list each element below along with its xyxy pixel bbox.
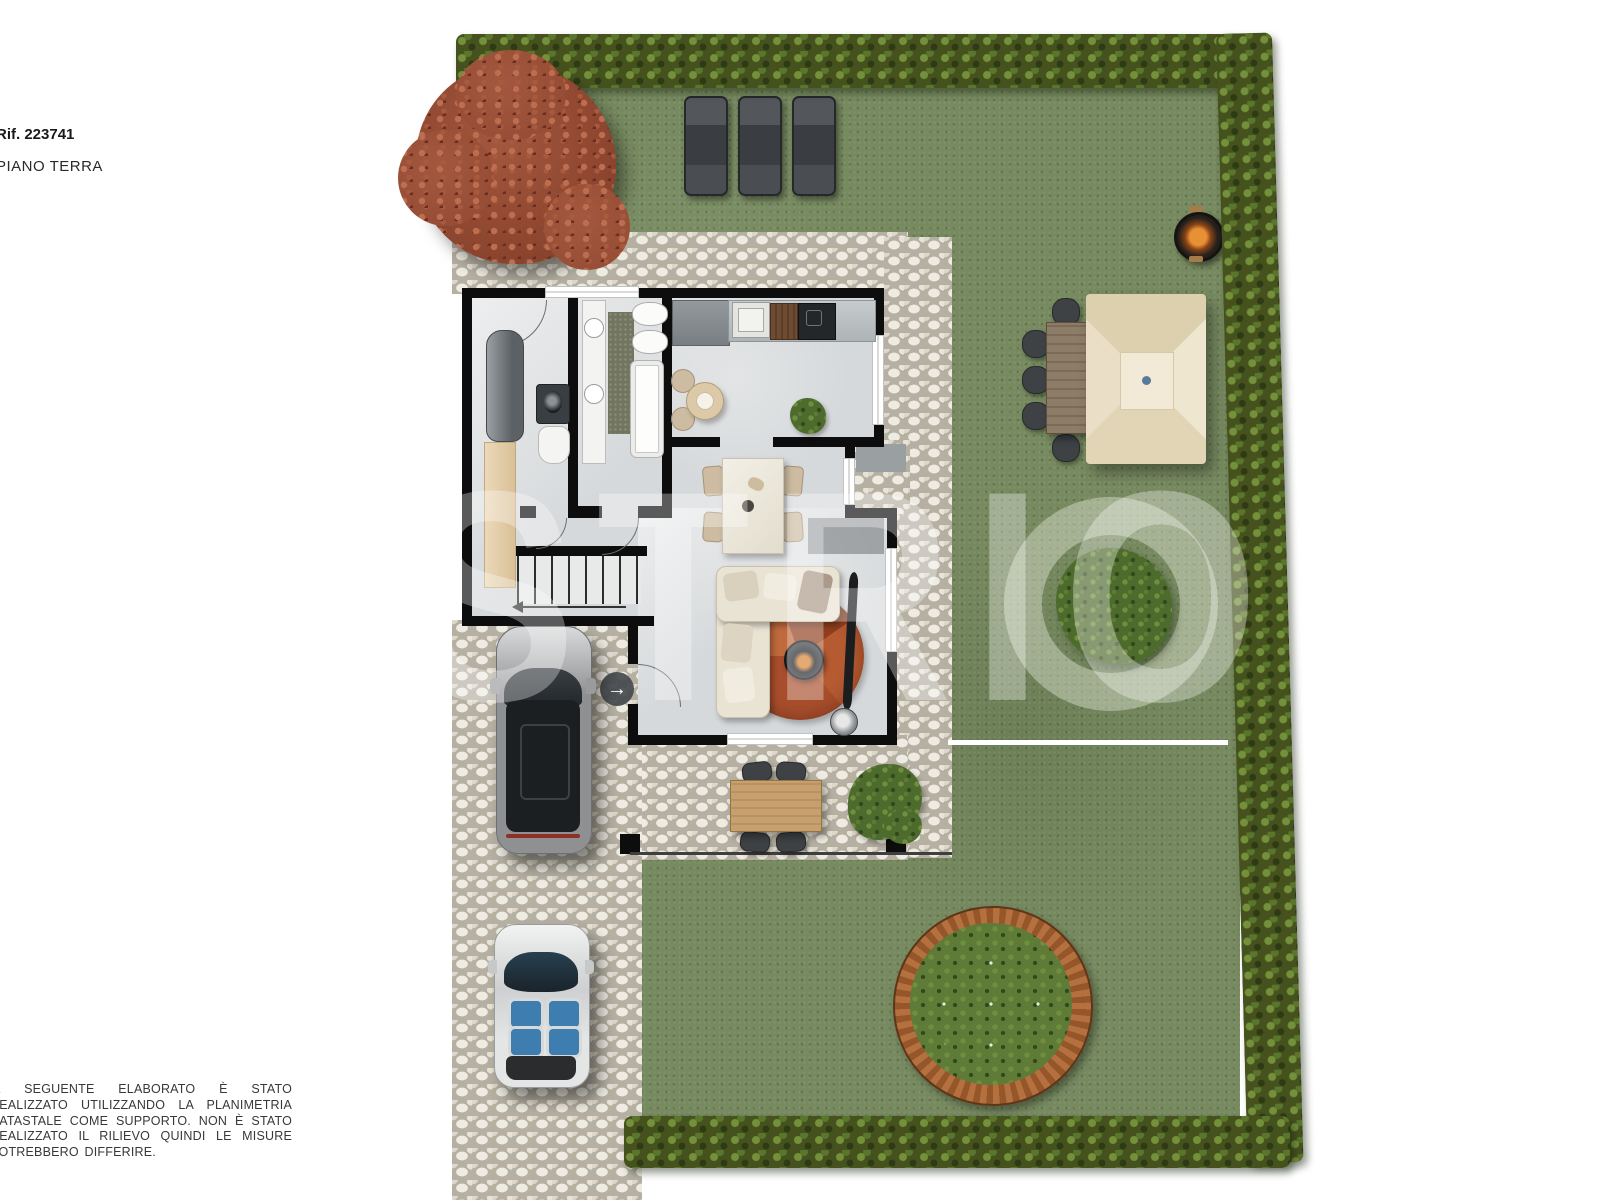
- kitchen-sink: [732, 302, 770, 338]
- disclaimer-text: IL SEGUENTE ELABORATO È STATO REALIZZATO…: [0, 1082, 292, 1161]
- floor-label: PIANO TERRA: [0, 158, 103, 175]
- fire-pit-handle-bottom: [1189, 256, 1203, 262]
- breakfast-table-dish: [696, 392, 714, 410]
- convertible-windshield: [504, 952, 578, 992]
- terrace-chair-4: [775, 831, 806, 853]
- hedge-top: [456, 34, 1232, 88]
- kitchen-cabinet-wood: [770, 303, 798, 340]
- entrance-door-threshold: [545, 286, 639, 298]
- bath-sink-2: [584, 384, 604, 404]
- floor-plan-page: → STRIO Ri: [0, 0, 1600, 1200]
- convertible-seat-4: [546, 1026, 582, 1058]
- terrace-table: [730, 780, 822, 832]
- porch-edge-line: [630, 852, 952, 855]
- convertible-mirror-right: [585, 960, 594, 974]
- fridge-unit: [672, 300, 730, 346]
- cooktop-burner: [806, 310, 822, 326]
- washing-machine-drum: [544, 391, 562, 413]
- wall-top: [462, 288, 884, 298]
- fire-pit: [1174, 212, 1224, 262]
- autumn-tree-blob-top: [456, 50, 566, 140]
- autumn-tree-blob-left: [398, 130, 494, 226]
- water-heater: [486, 330, 524, 442]
- umbrella-pole: [1142, 376, 1151, 385]
- reference-label: Rif. 223741: [0, 126, 74, 143]
- autumn-tree-blob-right: [544, 184, 630, 270]
- terrace-shrub-blob: [884, 808, 922, 844]
- bidet: [632, 330, 668, 354]
- convertible-seat-3: [508, 1026, 544, 1058]
- bath-sink-1: [584, 318, 604, 338]
- suv-taillights: [506, 834, 580, 838]
- sun-lounger-3: [792, 96, 836, 196]
- planter-flowers: [930, 945, 1050, 1065]
- convertible-mirror-left: [488, 960, 497, 974]
- sun-lounger-1: [684, 96, 728, 196]
- convertible-trunk: [506, 1056, 576, 1080]
- porch-pillar-left: [620, 834, 640, 854]
- watermark: STRIO: [408, 446, 1279, 746]
- hedge-bottom: [624, 1116, 1290, 1168]
- fire-pit-handle-top: [1189, 206, 1203, 212]
- kitchen-window: [872, 335, 884, 425]
- toilet: [632, 302, 668, 326]
- terrace-chair-3: [739, 830, 771, 853]
- sun-lounger-2: [738, 96, 782, 196]
